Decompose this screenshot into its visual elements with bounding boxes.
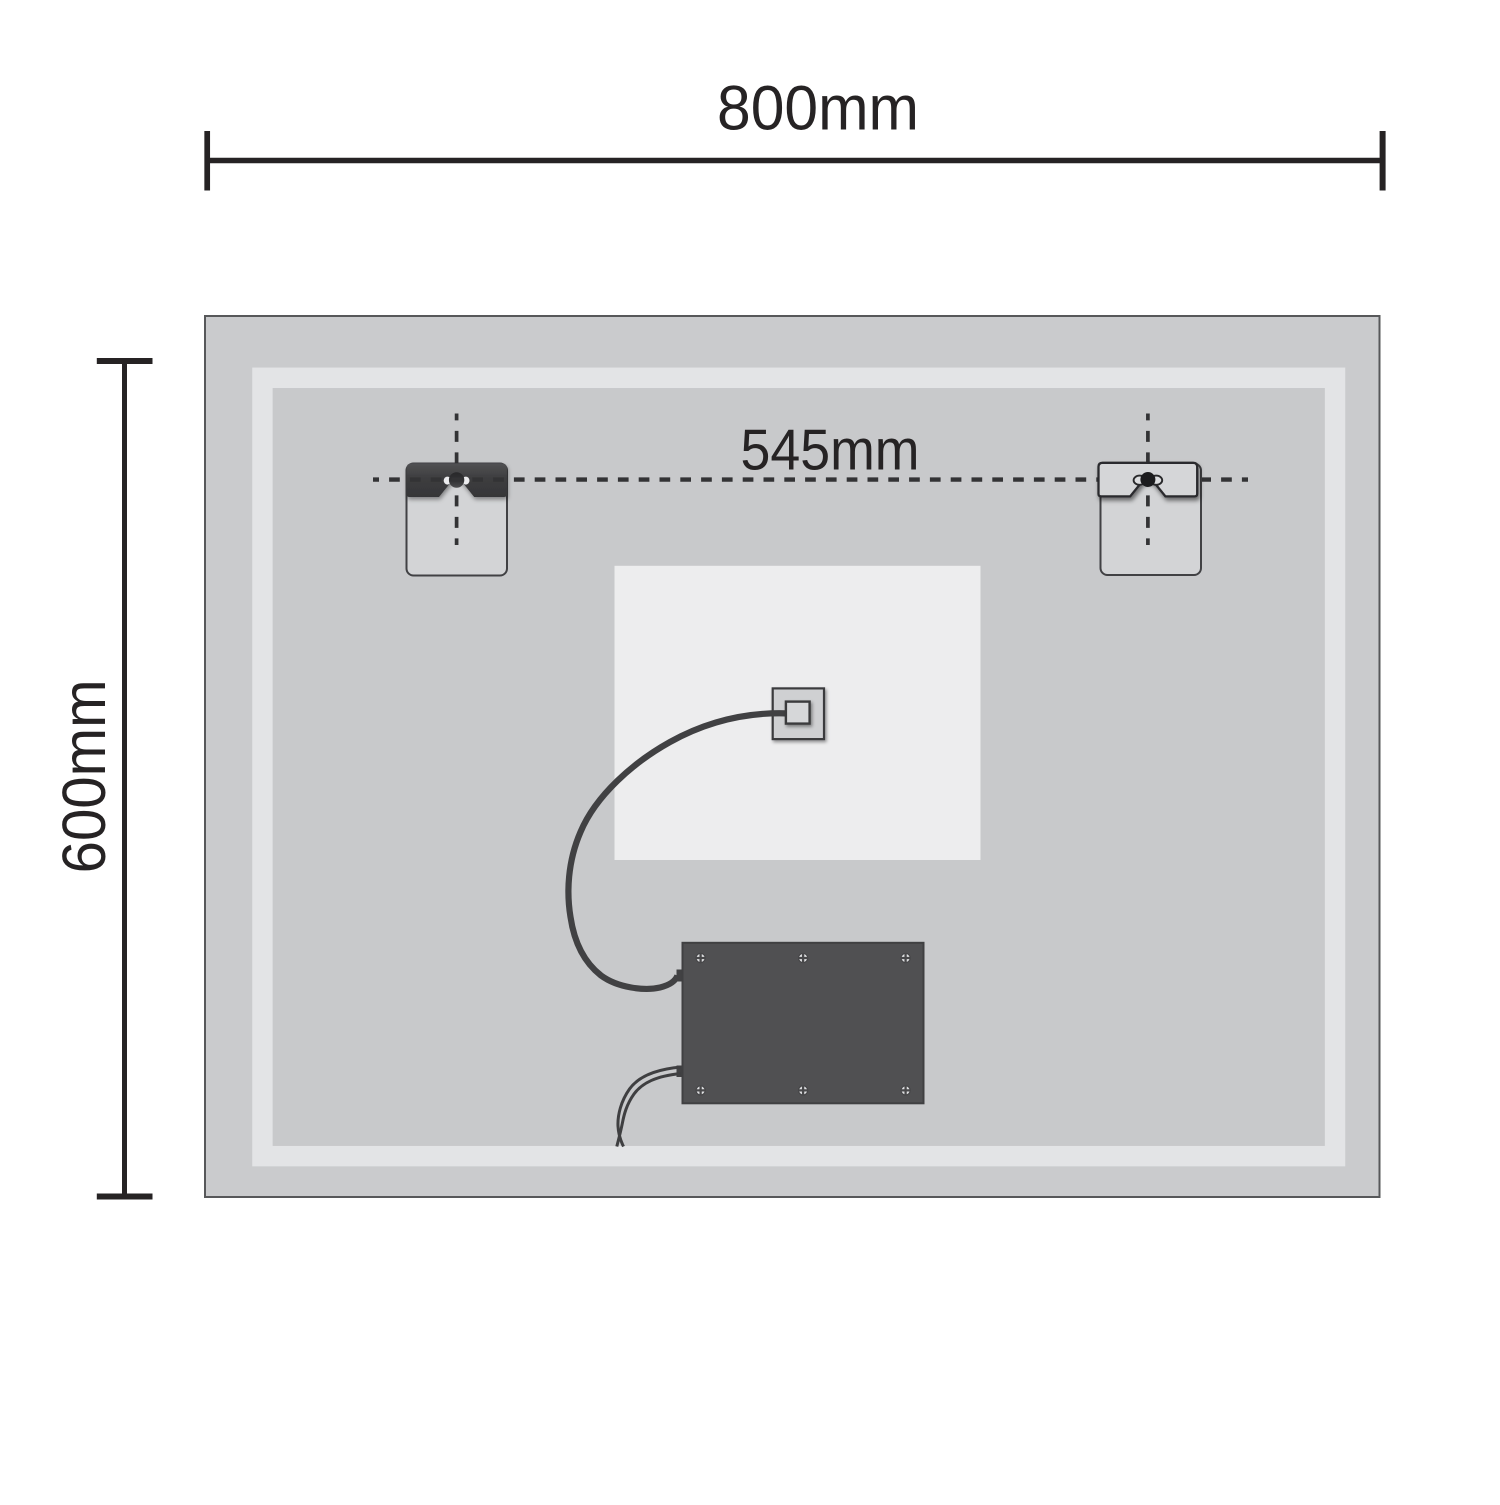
svg-text:800mm: 800mm (717, 74, 919, 144)
svg-text:600mm: 600mm (50, 679, 119, 873)
svg-text:545mm: 545mm (741, 418, 920, 482)
